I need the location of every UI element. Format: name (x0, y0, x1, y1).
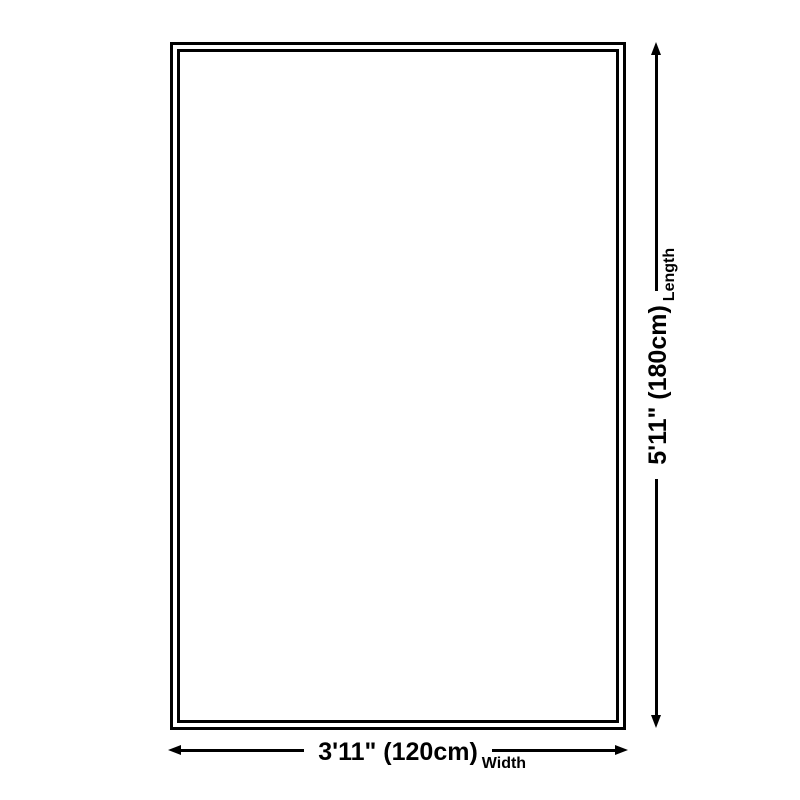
arrow-down-icon (651, 715, 661, 728)
width-dimension: 3'11" (120cm) Width (168, 728, 628, 772)
arrow-up-icon (651, 42, 661, 55)
width-value-label: 3'11" (120cm) (318, 740, 478, 765)
dimension-diagram: 5'11" (180cm) Length 3'11" (120cm) Width (0, 0, 800, 800)
arrow-right-icon (615, 745, 628, 755)
rug-outline (170, 42, 626, 730)
rug-inner-border (177, 49, 619, 723)
width-dimension-line-segment (181, 749, 304, 752)
arrow-left-icon (168, 745, 181, 755)
length-dimension: 5'11" (180cm) Length (634, 42, 678, 728)
length-dimension-line-segment: Length (655, 55, 658, 291)
width-axis-label: Width (482, 756, 526, 772)
width-dimension-line-segment: Width (492, 749, 615, 752)
length-value-label: 5'11" (180cm) (646, 305, 671, 465)
length-dimension-line-segment (655, 479, 658, 715)
length-axis-label: Length (662, 248, 678, 301)
